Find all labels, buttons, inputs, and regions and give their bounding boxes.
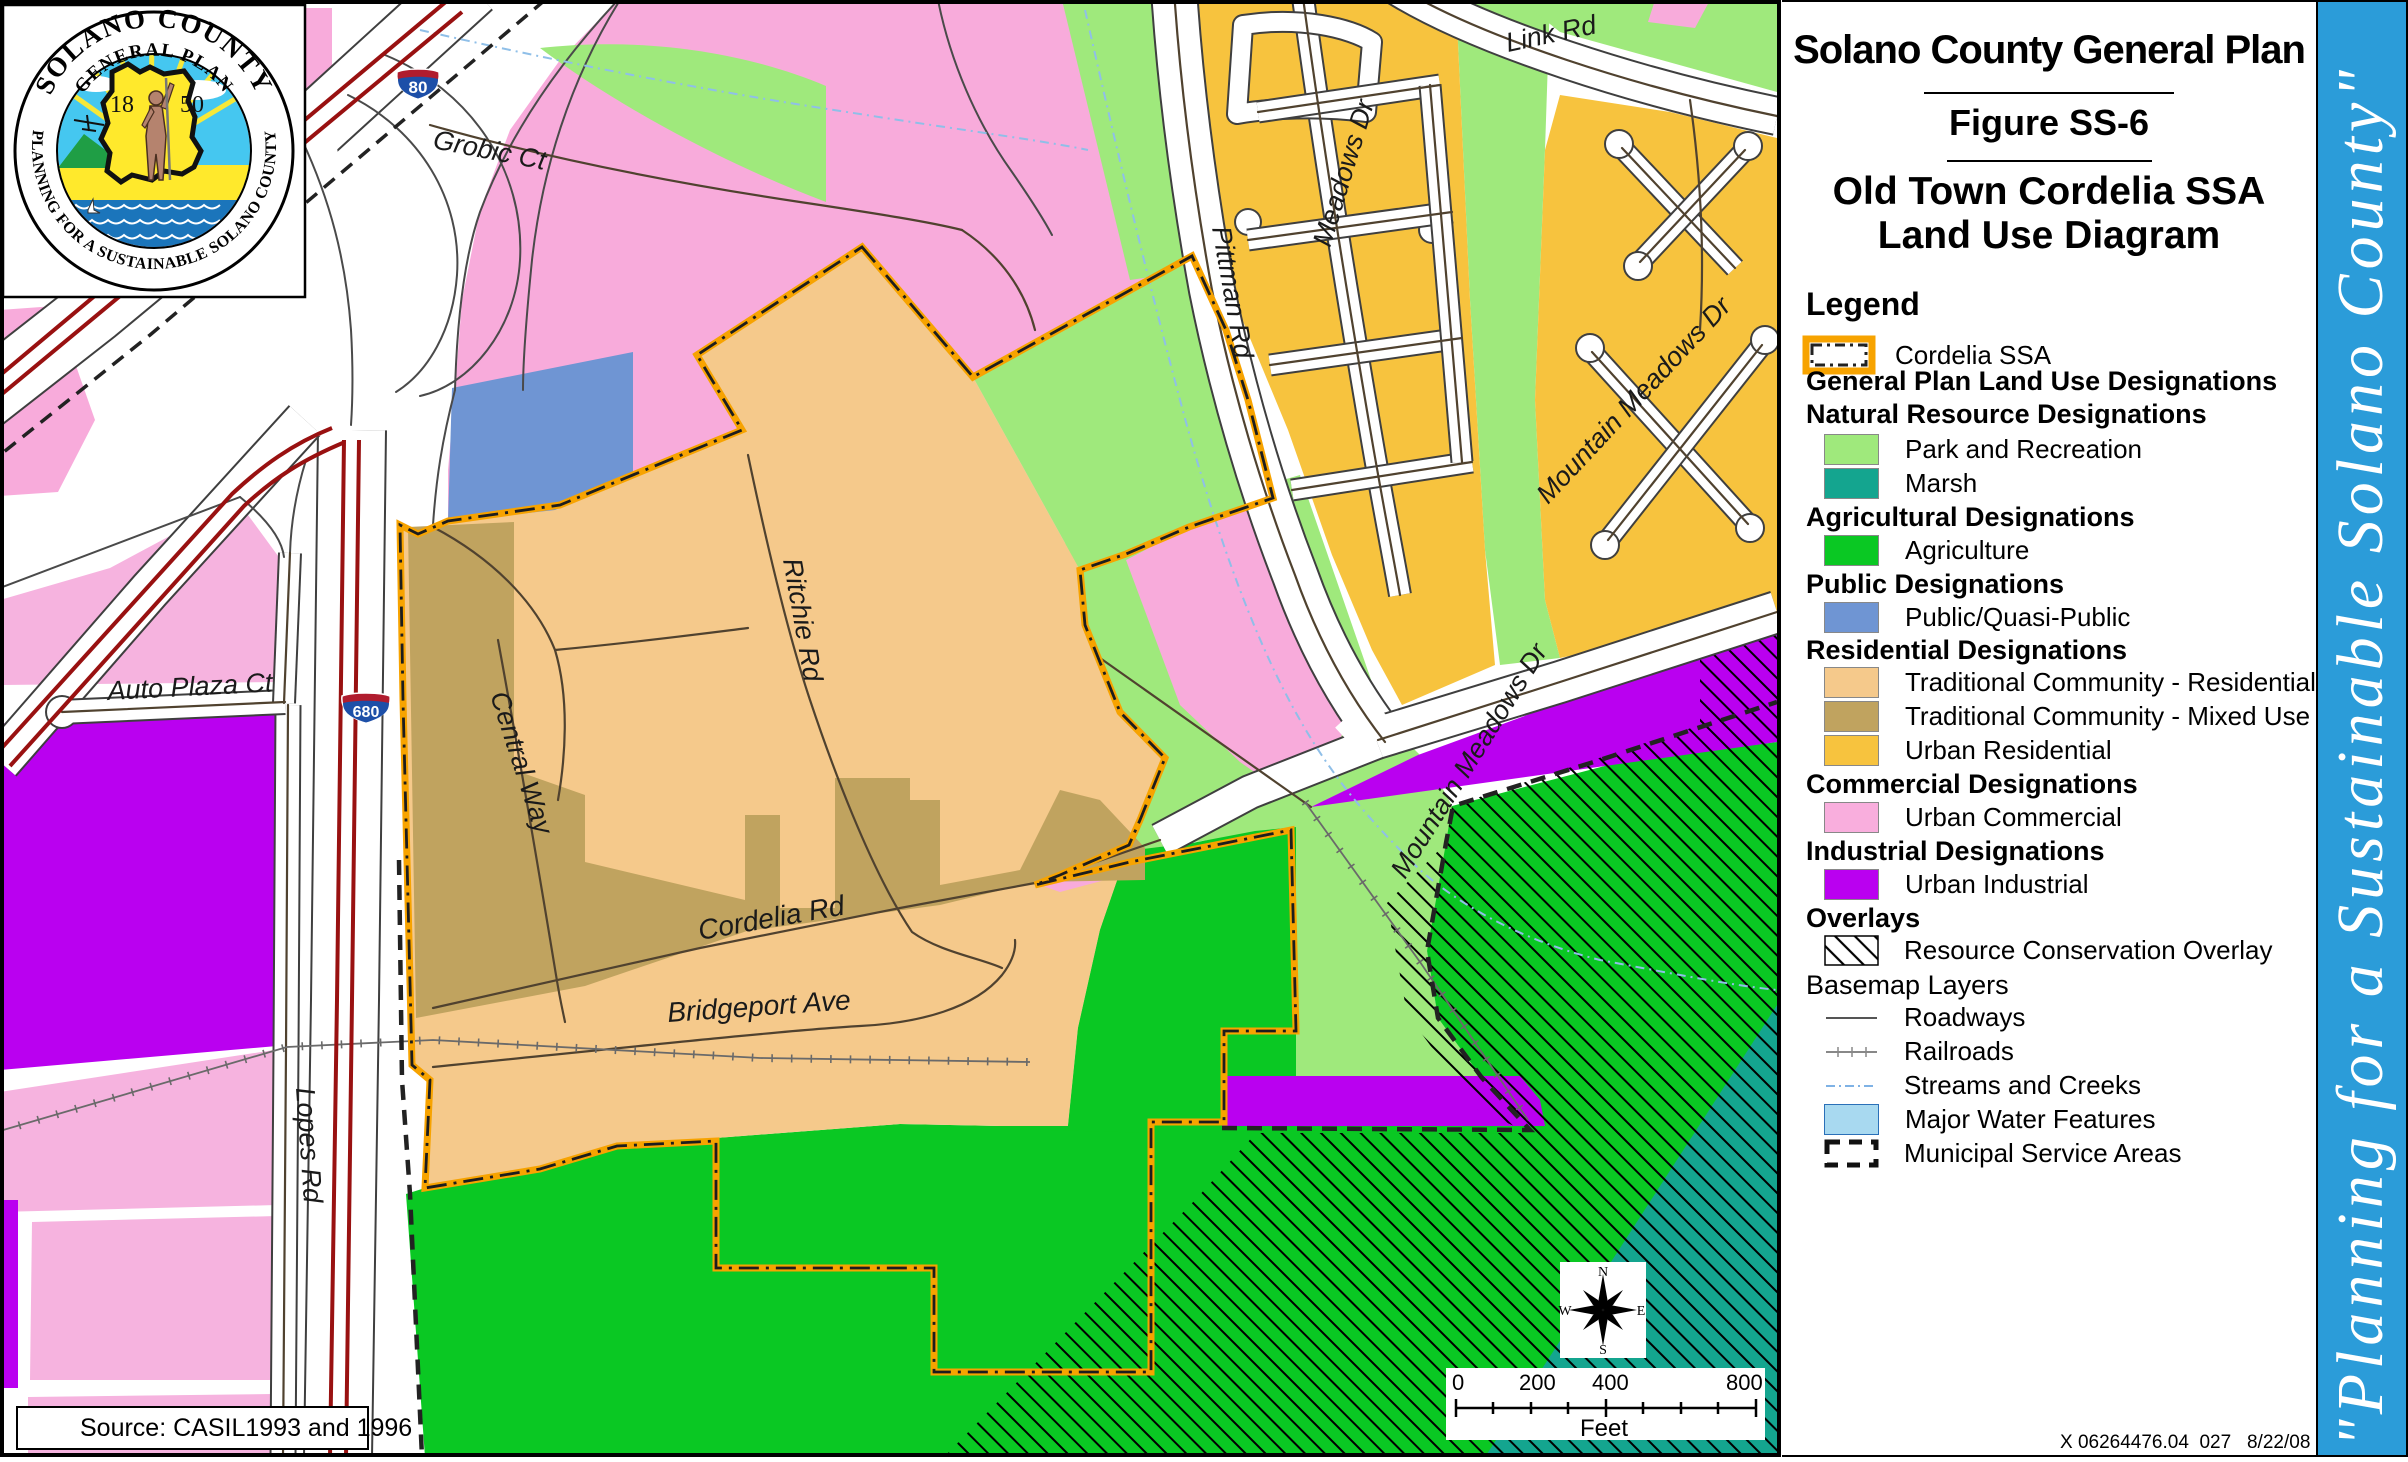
svg-text:50: 50 bbox=[180, 92, 204, 118]
svg-text:W: W bbox=[1558, 1304, 1572, 1319]
svg-text:18: 18 bbox=[110, 92, 134, 118]
svg-text:Feet: Feet bbox=[1580, 1415, 1628, 1442]
svg-text:800: 800 bbox=[1726, 1370, 1763, 1395]
svg-text:0: 0 bbox=[1452, 1370, 1464, 1395]
svg-text:80: 80 bbox=[409, 78, 428, 97]
svg-text:200: 200 bbox=[1519, 1370, 1556, 1395]
svg-text:E: E bbox=[1637, 1304, 1646, 1319]
svg-text:400: 400 bbox=[1592, 1370, 1629, 1395]
svg-text:680: 680 bbox=[353, 704, 380, 721]
svg-text:"Planning for a Sustainable So: "Planning for a Sustainable Solano Count… bbox=[2324, 65, 2397, 1447]
svg-text:Source: CASIL1993 and 1996: Source: CASIL1993 and 1996 bbox=[80, 1414, 412, 1442]
